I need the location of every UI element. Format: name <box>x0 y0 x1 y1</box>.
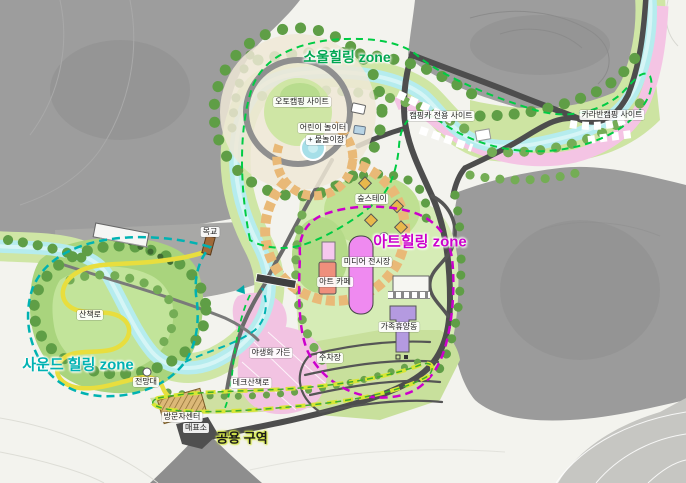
site-plan-map: 소울힐링 zone 아트힐링 zone 사운드 힐링 zone 공용 구역 오토… <box>0 0 686 483</box>
art-cafe-building <box>319 262 336 294</box>
media-exhibition-building <box>349 236 373 314</box>
observatory-icon <box>143 368 151 376</box>
art-annex-building <box>322 242 335 260</box>
map-graphic <box>0 0 686 483</box>
